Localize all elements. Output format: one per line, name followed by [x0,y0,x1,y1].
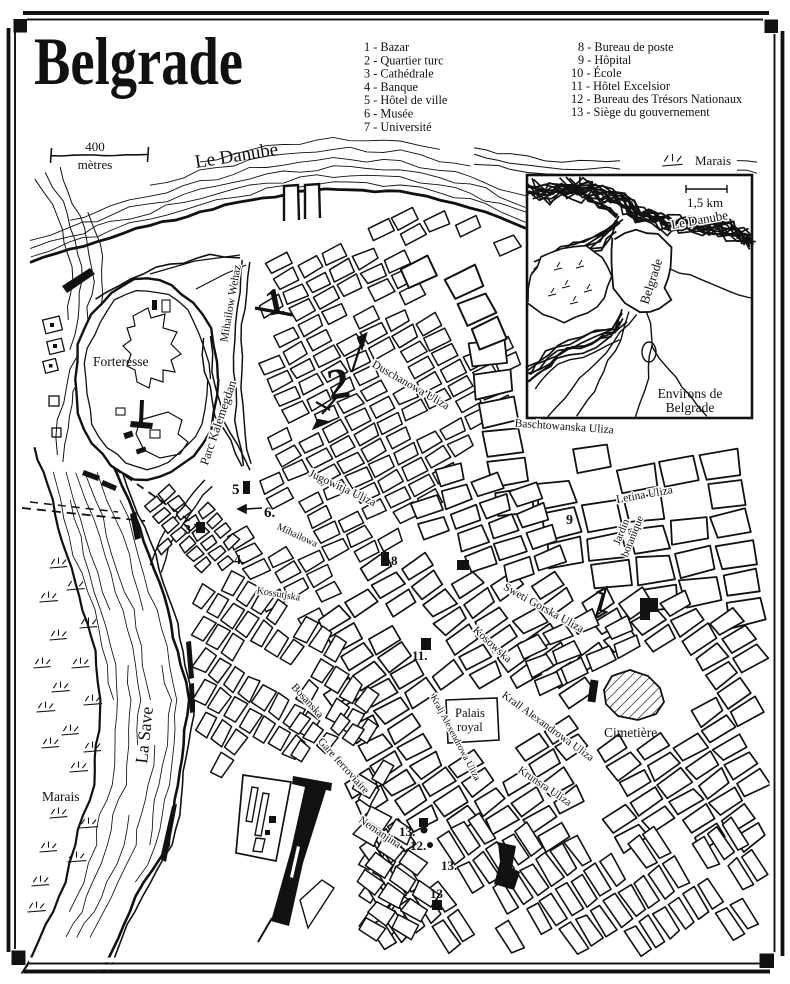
svg-text:12 - Bureau des Trésors Nation: 12 - Bureau des Trésors Nationaux [571,92,742,106]
svg-text:3 - Cathédrale: 3 - Cathédrale [364,67,434,81]
svg-text:11 - Hôtel Excelsior: 11 - Hôtel Excelsior [571,79,670,93]
svg-text:6 - Musée: 6 - Musée [364,107,414,121]
svg-text:Belgrade: Belgrade [34,23,243,99]
svg-text:Cimetière: Cimetière [604,725,657,740]
svg-text:3.: 3. [184,523,195,538]
svg-text:8: 8 [391,553,398,568]
svg-text:royal: royal [457,720,483,734]
svg-text:Forteresse: Forteresse [93,354,148,369]
svg-text:Marais: Marais [695,153,731,168]
svg-text:400: 400 [85,139,105,154]
svg-text:Palais: Palais [455,706,485,720]
svg-text:6.: 6. [264,505,276,521]
svg-text:7 - Université: 7 - Université [364,120,432,134]
svg-text:5 - Hôtel de ville: 5 - Hôtel de ville [364,93,448,107]
svg-text:12.: 12. [410,838,426,853]
svg-text:1 - Bazar: 1 - Bazar [364,40,409,54]
svg-text:9 - Hôpital: 9 - Hôpital [578,53,632,67]
svg-text:mètres: mètres [78,157,113,172]
svg-text:2 - Quartier turc: 2 - Quartier turc [364,53,444,67]
svg-text:Marais: Marais [42,789,80,804]
svg-text:4 - Banque: 4 - Banque [364,80,418,94]
svg-text:9: 9 [566,513,573,528]
svg-text:13 - Siège du gouvernement: 13 - Siège du gouvernement [571,105,710,119]
svg-text:1,5 km: 1,5 km [687,195,723,210]
svg-text:Belgrade: Belgrade [666,400,715,415]
svg-text:13.: 13. [441,858,457,873]
svg-text:8 - Bureau de poste: 8 - Bureau de poste [578,40,674,54]
svg-text:5: 5 [232,482,240,498]
svg-text:Environs de: Environs de [658,386,723,401]
svg-text:4.: 4. [234,553,245,568]
svg-text:10 - École: 10 - École [571,66,622,80]
svg-text:13: 13 [430,886,444,901]
svg-text:11.: 11. [412,648,428,663]
svg-text:13.: 13. [399,824,415,839]
